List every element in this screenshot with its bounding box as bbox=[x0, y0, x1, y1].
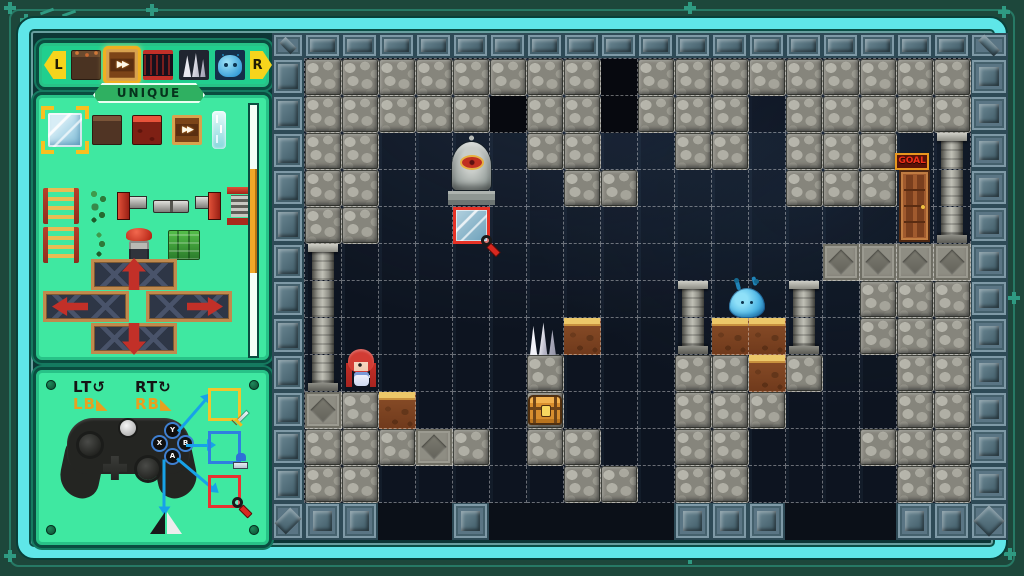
grid-cell-empty[interactable] bbox=[564, 281, 601, 318]
left-stick-icon bbox=[79, 434, 101, 456]
tile-cobblestone[interactable] bbox=[934, 96, 971, 133]
grid-cell-empty[interactable] bbox=[638, 466, 675, 503]
border-block bbox=[933, 502, 970, 540]
palette-item-ladder[interactable] bbox=[43, 227, 79, 263]
grid-cell-empty[interactable] bbox=[675, 207, 712, 244]
tile-cobblestone[interactable] bbox=[342, 207, 379, 244]
grid-cell-empty[interactable] bbox=[490, 318, 527, 355]
grid-cell-empty[interactable] bbox=[860, 392, 897, 429]
frame-ornament bbox=[1012, 296, 1016, 300]
tile-cobblestone[interactable] bbox=[675, 59, 712, 96]
grid-cell-empty[interactable] bbox=[638, 244, 675, 281]
grid-cell-empty[interactable] bbox=[453, 466, 490, 503]
grid-cell-empty[interactable] bbox=[453, 281, 490, 318]
grid-cell-empty[interactable] bbox=[527, 207, 564, 244]
pillar-base bbox=[789, 346, 819, 354]
border-block bbox=[415, 33, 452, 58]
border-block bbox=[272, 132, 304, 169]
tile-dirt[interactable] bbox=[749, 318, 786, 355]
binding-arrow bbox=[163, 460, 166, 508]
platform-up-item[interactable] bbox=[91, 259, 177, 290]
tile-cobblestone[interactable] bbox=[527, 96, 564, 133]
tile-cobblestone[interactable] bbox=[860, 133, 897, 170]
tile-pillar[interactable] bbox=[675, 281, 712, 318]
grid-cell-empty[interactable] bbox=[379, 207, 416, 244]
grid-cell-empty[interactable] bbox=[638, 318, 675, 355]
grid-cell-empty[interactable] bbox=[749, 244, 786, 281]
tile-cobblestone[interactable] bbox=[860, 281, 897, 318]
tab-dirt[interactable] bbox=[71, 50, 101, 80]
border-block bbox=[970, 465, 1008, 502]
rt-label: RT↻ bbox=[135, 378, 172, 396]
player-character[interactable] bbox=[346, 349, 376, 392]
magnifier-cursor-icon bbox=[481, 235, 501, 255]
border-block bbox=[637, 33, 674, 58]
border-corner bbox=[970, 33, 1008, 58]
tile-cobblestone[interactable] bbox=[416, 59, 453, 96]
tile-cobblestone[interactable] bbox=[342, 466, 379, 503]
tile-cobblestone[interactable] bbox=[564, 96, 601, 133]
border-block bbox=[304, 33, 341, 58]
grid-cell-empty[interactable] bbox=[638, 207, 675, 244]
tile-cobblestone[interactable] bbox=[897, 281, 934, 318]
tile-cobblestone[interactable] bbox=[453, 96, 490, 133]
outer-frame: L R UNIQUE LT↺ RT↻ LB◣ RB◣ bbox=[18, 18, 1006, 558]
grid-cell-empty[interactable] bbox=[786, 392, 823, 429]
tile-cobblestone[interactable] bbox=[897, 318, 934, 355]
grid-cell-empty[interactable] bbox=[490, 466, 527, 503]
category-next-button[interactable]: R bbox=[250, 51, 272, 79]
grid-cell-empty[interactable] bbox=[379, 170, 416, 207]
grid-cell-empty[interactable] bbox=[638, 429, 675, 466]
grid-cell-empty[interactable] bbox=[379, 466, 416, 503]
grid-cell-empty[interactable] bbox=[860, 466, 897, 503]
grid-cell-empty[interactable] bbox=[416, 466, 453, 503]
palette-item-pipeM[interactable] bbox=[153, 200, 189, 213]
grid-cell-empty[interactable] bbox=[453, 318, 490, 355]
grid-cell-empty[interactable] bbox=[527, 170, 564, 207]
tile-cobblestone[interactable] bbox=[527, 133, 564, 170]
platform-right-item[interactable] bbox=[146, 291, 232, 322]
tile-carved-stone[interactable] bbox=[823, 244, 860, 281]
border-block bbox=[272, 169, 304, 206]
palette-scrollbar[interactable] bbox=[248, 103, 259, 358]
grid-cell-empty[interactable] bbox=[416, 355, 453, 392]
tile-cobblestone[interactable] bbox=[823, 170, 860, 207]
tile-pillar[interactable] bbox=[934, 133, 971, 170]
sword-binding-box bbox=[208, 388, 241, 421]
tile-cobblestone[interactable] bbox=[601, 170, 638, 207]
tile-cobblestone[interactable] bbox=[675, 96, 712, 133]
controls-legend-panel: LT↺ RT↻ LB◣ RB◣ Y X B A bbox=[33, 367, 272, 548]
sword-tool-icon bbox=[232, 410, 251, 429]
border-block bbox=[933, 33, 970, 58]
grid-cell-empty[interactable] bbox=[823, 466, 860, 503]
rotate-cw-icon: ↻ bbox=[158, 378, 172, 396]
grid-cell-empty[interactable] bbox=[860, 355, 897, 392]
tile-cobblestone[interactable] bbox=[712, 133, 749, 170]
grid-cell-empty[interactable] bbox=[786, 466, 823, 503]
slime-enemy[interactable] bbox=[729, 288, 765, 318]
tile-cobblestone[interactable] bbox=[490, 59, 527, 96]
tile-cobblestone[interactable] bbox=[453, 429, 490, 466]
tile-cobblestone[interactable] bbox=[342, 429, 379, 466]
palette-row-2 bbox=[43, 187, 249, 225]
grid-cell-empty[interactable] bbox=[490, 281, 527, 318]
tile-cobblestone[interactable] bbox=[934, 355, 971, 392]
tile-cobblestone[interactable] bbox=[786, 133, 823, 170]
tile-cobblestone[interactable] bbox=[934, 59, 971, 96]
tile-cobblestone[interactable] bbox=[712, 429, 749, 466]
grid-cell-empty[interactable] bbox=[379, 244, 416, 281]
goal-door[interactable] bbox=[899, 170, 930, 242]
border-block bbox=[272, 280, 304, 317]
grid-cell-empty[interactable] bbox=[379, 355, 416, 392]
tile-void-dark[interactable] bbox=[601, 96, 638, 133]
tile-cobblestone[interactable] bbox=[342, 133, 379, 170]
tile-cobblestone[interactable] bbox=[638, 96, 675, 133]
grid-cell-empty[interactable] bbox=[675, 170, 712, 207]
grid-cell-empty[interactable] bbox=[601, 392, 638, 429]
border-block bbox=[748, 33, 785, 58]
tile-cobblestone[interactable] bbox=[305, 59, 342, 96]
border-block bbox=[563, 33, 600, 58]
grid-cell-empty[interactable] bbox=[564, 244, 601, 281]
tab-trap[interactable] bbox=[143, 50, 173, 80]
grid-cell-empty[interactable] bbox=[564, 355, 601, 392]
grid-cell-empty[interactable] bbox=[786, 244, 823, 281]
tile-cobblestone[interactable] bbox=[305, 466, 342, 503]
tile-cobblestone[interactable] bbox=[712, 355, 749, 392]
grid-cell-empty[interactable] bbox=[342, 244, 379, 281]
treasure-chest[interactable] bbox=[528, 395, 562, 425]
tile-cobblestone[interactable] bbox=[786, 355, 823, 392]
grid-cell-empty[interactable] bbox=[749, 133, 786, 170]
tile-cobblestone[interactable] bbox=[823, 133, 860, 170]
palette-item-pipeL[interactable] bbox=[117, 192, 147, 220]
grid-cell-empty[interactable] bbox=[379, 281, 416, 318]
tile-cobblestone[interactable] bbox=[564, 429, 601, 466]
border-block bbox=[711, 502, 748, 540]
border-block bbox=[970, 206, 1008, 243]
frame-ornament bbox=[8, 6, 12, 10]
grid-cell-empty[interactable] bbox=[823, 207, 860, 244]
grid-cell-empty[interactable] bbox=[490, 170, 527, 207]
x-button-icon: X bbox=[153, 437, 166, 450]
stone-statue[interactable] bbox=[448, 135, 495, 205]
grid-cell-empty[interactable] bbox=[601, 207, 638, 244]
border-block bbox=[272, 243, 304, 280]
grid-cell-empty[interactable] bbox=[490, 355, 527, 392]
grid-cell-empty[interactable] bbox=[416, 244, 453, 281]
grid-cell-empty[interactable] bbox=[786, 207, 823, 244]
tile-cobblestone[interactable] bbox=[527, 429, 564, 466]
tile-carved-stone[interactable] bbox=[934, 244, 971, 281]
tile-pillar[interactable] bbox=[305, 244, 342, 281]
border-block bbox=[674, 33, 711, 58]
grid-cell-empty[interactable] bbox=[601, 281, 638, 318]
grid-cell-empty[interactable] bbox=[712, 207, 749, 244]
grid-cell-empty[interactable] bbox=[527, 281, 564, 318]
tile-cobblestone[interactable] bbox=[564, 170, 601, 207]
grid-cell-empty[interactable] bbox=[416, 207, 453, 244]
grid-cell-empty[interactable] bbox=[453, 392, 490, 429]
grid-cell-empty[interactable] bbox=[416, 281, 453, 318]
pillar-base bbox=[308, 383, 338, 391]
grid-cell-empty[interactable] bbox=[490, 392, 527, 429]
grid-cell-empty[interactable] bbox=[749, 429, 786, 466]
tab-crystal[interactable] bbox=[179, 50, 209, 80]
tile-void-dark[interactable] bbox=[601, 59, 638, 96]
flip-horizontal-icon bbox=[148, 510, 184, 536]
palette-item-fall[interactable] bbox=[212, 111, 226, 149]
tile-cobblestone[interactable] bbox=[934, 392, 971, 429]
border-block bbox=[272, 465, 304, 502]
pillar-capital bbox=[789, 281, 819, 289]
grid-cell-empty[interactable] bbox=[823, 429, 860, 466]
tile-cobblestone[interactable] bbox=[786, 170, 823, 207]
tile-dirt[interactable] bbox=[712, 318, 749, 355]
category-prev-button[interactable]: L bbox=[44, 51, 66, 79]
tile-cobblestone[interactable] bbox=[527, 59, 564, 96]
border-block bbox=[526, 33, 563, 58]
tile-carved-stone[interactable] bbox=[416, 429, 453, 466]
border-block bbox=[378, 33, 415, 58]
grid-cell-empty[interactable] bbox=[638, 392, 675, 429]
palette-item-ladder[interactable] bbox=[43, 188, 79, 224]
frame-ornament bbox=[688, 6, 692, 10]
tile-carved-stone[interactable] bbox=[897, 244, 934, 281]
tile-void-dark[interactable] bbox=[490, 96, 527, 133]
tile-cobblestone[interactable] bbox=[712, 466, 749, 503]
border-block bbox=[970, 169, 1008, 206]
tile-dirt[interactable] bbox=[564, 318, 601, 355]
grid-cell-empty[interactable] bbox=[416, 392, 453, 429]
palette-row-3 bbox=[43, 227, 243, 263]
tile-cobblestone[interactable] bbox=[601, 466, 638, 503]
tile-cobblestone[interactable] bbox=[675, 466, 712, 503]
tile-cobblestone-dark[interactable] bbox=[749, 96, 786, 133]
border-corner bbox=[272, 502, 304, 540]
tile-cobblestone[interactable] bbox=[860, 170, 897, 207]
grid-cell-empty[interactable] bbox=[601, 355, 638, 392]
border-block bbox=[674, 502, 711, 540]
tile-cobblestone[interactable] bbox=[527, 355, 564, 392]
tile-cobblestone[interactable] bbox=[897, 59, 934, 96]
palette-item-plunger[interactable] bbox=[123, 227, 155, 263]
tile-cobblestone[interactable] bbox=[379, 429, 416, 466]
border-block bbox=[970, 132, 1008, 169]
pillar-capital bbox=[937, 133, 967, 141]
palette-item-moss[interactable] bbox=[168, 230, 200, 260]
grid-cell-empty[interactable] bbox=[490, 429, 527, 466]
tile-cobblestone[interactable] bbox=[342, 59, 379, 96]
tile-cobblestone[interactable] bbox=[305, 429, 342, 466]
tile-cobblestone[interactable] bbox=[860, 59, 897, 96]
grid-cell-empty[interactable] bbox=[601, 133, 638, 170]
border-block bbox=[452, 502, 489, 540]
tile-cobblestone[interactable] bbox=[712, 96, 749, 133]
grid-cell-empty[interactable] bbox=[823, 392, 860, 429]
tile-cobblestone[interactable] bbox=[749, 392, 786, 429]
grid-cell-empty[interactable] bbox=[749, 207, 786, 244]
tile-carved-stone[interactable] bbox=[860, 244, 897, 281]
grid-cell-empty[interactable] bbox=[638, 170, 675, 207]
platform-down-item[interactable] bbox=[91, 323, 177, 354]
border-block bbox=[711, 33, 748, 58]
palette-scrollbar-thumb[interactable] bbox=[250, 169, 257, 273]
tile-cobblestone[interactable] bbox=[638, 59, 675, 96]
grid-cell-empty[interactable] bbox=[527, 466, 564, 503]
tile-cobblestone[interactable] bbox=[786, 96, 823, 133]
tile-cobblestone[interactable] bbox=[860, 318, 897, 355]
border-block bbox=[341, 502, 378, 540]
tile-pillar[interactable] bbox=[934, 170, 971, 207]
tile-cobblestone[interactable] bbox=[934, 429, 971, 466]
tile-cobblestone[interactable] bbox=[342, 96, 379, 133]
tile-cobblestone[interactable] bbox=[379, 96, 416, 133]
palette-item-pipeJ[interactable] bbox=[195, 192, 221, 220]
palette-item-vinesm[interactable] bbox=[92, 230, 110, 260]
tile-cobblestone[interactable] bbox=[305, 133, 342, 170]
palette-item-ice[interactable] bbox=[48, 113, 82, 147]
palette-item-brown[interactable] bbox=[92, 115, 122, 145]
border-block bbox=[489, 33, 526, 58]
tile-grid[interactable]: GOAL bbox=[304, 58, 971, 503]
tile-cobblestone[interactable] bbox=[897, 466, 934, 503]
border-block bbox=[970, 95, 1008, 132]
tile-cobblestone[interactable] bbox=[675, 355, 712, 392]
magnifier-tool-icon bbox=[232, 497, 251, 516]
tile-cobblestone[interactable] bbox=[342, 392, 379, 429]
platform-left-item[interactable] bbox=[43, 291, 129, 322]
grid-cell-empty[interactable] bbox=[490, 133, 527, 170]
tile-cobblestone[interactable] bbox=[305, 96, 342, 133]
tile-cobblestone[interactable] bbox=[305, 207, 342, 244]
tile-cobblestone[interactable] bbox=[749, 59, 786, 96]
grid-cell-empty[interactable] bbox=[786, 429, 823, 466]
tile-pillar[interactable] bbox=[675, 318, 712, 355]
tile-cobblestone[interactable] bbox=[564, 59, 601, 96]
border-block bbox=[272, 95, 304, 132]
tile-cobblestone[interactable] bbox=[897, 96, 934, 133]
grid-cell-empty[interactable] bbox=[601, 318, 638, 355]
grid-cell-empty[interactable] bbox=[749, 466, 786, 503]
tile-cobblestone[interactable] bbox=[823, 96, 860, 133]
grid-cell-empty[interactable] bbox=[712, 170, 749, 207]
tile-cobblestone[interactable] bbox=[379, 59, 416, 96]
palette-item-lava[interactable] bbox=[132, 115, 162, 145]
tile-cobblestone[interactable] bbox=[675, 392, 712, 429]
category-tabs bbox=[71, 50, 245, 80]
tile-cobblestone[interactable] bbox=[416, 96, 453, 133]
grid-cell-empty[interactable] bbox=[379, 133, 416, 170]
palette-item-conveyor[interactable] bbox=[172, 115, 202, 145]
tile-pillar[interactable] bbox=[305, 281, 342, 318]
goal-sign[interactable]: GOAL bbox=[895, 153, 929, 170]
xbox-guide-icon bbox=[120, 420, 136, 436]
grid-cell-empty[interactable] bbox=[527, 244, 564, 281]
grid-cell-empty[interactable] bbox=[601, 429, 638, 466]
pillar-base bbox=[937, 235, 967, 243]
border-block bbox=[304, 502, 341, 540]
tile-cobblestone[interactable] bbox=[823, 59, 860, 96]
pillar-base bbox=[678, 346, 708, 354]
tile-cobblestone[interactable] bbox=[934, 281, 971, 318]
tile-cobblestone[interactable] bbox=[564, 466, 601, 503]
tile-cobblestone[interactable] bbox=[786, 59, 823, 96]
tile-pillar[interactable] bbox=[786, 281, 823, 318]
tile-cobblestone[interactable] bbox=[342, 170, 379, 207]
grid-cell-empty[interactable] bbox=[712, 244, 749, 281]
grid-cell-empty[interactable] bbox=[342, 281, 379, 318]
border-block bbox=[822, 33, 859, 58]
tile-cobblestone[interactable] bbox=[712, 59, 749, 96]
tile-cobblestone[interactable] bbox=[564, 133, 601, 170]
palette-item-vine[interactable] bbox=[85, 188, 111, 224]
tile-cobblestone[interactable] bbox=[453, 59, 490, 96]
tab-conveyor[interactable] bbox=[106, 49, 138, 81]
tile-pillar[interactable] bbox=[305, 318, 342, 355]
tile-cobblestone[interactable] bbox=[305, 170, 342, 207]
grid-cell-empty[interactable] bbox=[638, 133, 675, 170]
lt-label: LT↺ bbox=[73, 378, 106, 396]
tile-cobblestone[interactable] bbox=[860, 96, 897, 133]
tile-cobblestone[interactable] bbox=[712, 392, 749, 429]
tile-cobblestone[interactable] bbox=[897, 355, 934, 392]
border-block bbox=[896, 502, 933, 540]
tile-cobblestone[interactable] bbox=[860, 429, 897, 466]
tile-cobblestone[interactable] bbox=[675, 133, 712, 170]
triangle-icon: ◣ bbox=[160, 395, 173, 413]
tile-pillar[interactable] bbox=[305, 355, 342, 392]
grid-cell-empty[interactable] bbox=[379, 318, 416, 355]
tab-slime[interactable] bbox=[215, 50, 245, 80]
grid-cell-empty[interactable] bbox=[675, 244, 712, 281]
grid-cell-empty[interactable] bbox=[564, 392, 601, 429]
grid-cell-empty[interactable] bbox=[638, 355, 675, 392]
grid-cell-empty[interactable] bbox=[823, 281, 860, 318]
tile-cobblestone[interactable] bbox=[934, 466, 971, 503]
palette-row-1 bbox=[48, 111, 248, 149]
border-block bbox=[970, 243, 1008, 280]
tile-cobblestone[interactable] bbox=[934, 318, 971, 355]
grid-cell-empty[interactable] bbox=[638, 281, 675, 318]
grid-cell-empty[interactable] bbox=[749, 170, 786, 207]
tile-pillar[interactable] bbox=[934, 207, 971, 244]
tile-cobblestone[interactable] bbox=[675, 429, 712, 466]
border-block bbox=[970, 280, 1008, 317]
level-editor-area: GOAL bbox=[272, 33, 1008, 540]
grid-cell-empty[interactable] bbox=[564, 207, 601, 244]
grid-cell-empty[interactable] bbox=[823, 318, 860, 355]
grid-cell-empty[interactable] bbox=[601, 244, 638, 281]
grid-cell-empty[interactable] bbox=[416, 318, 453, 355]
rb-label: RB◣ bbox=[135, 395, 173, 413]
frame-ornament bbox=[1002, 10, 1006, 14]
tile-carved-stone[interactable] bbox=[305, 392, 342, 429]
border-block bbox=[970, 354, 1008, 391]
tile-dirt[interactable] bbox=[379, 392, 416, 429]
grid-cell-empty[interactable] bbox=[453, 355, 490, 392]
tile-pillar[interactable] bbox=[786, 318, 823, 355]
border-corner bbox=[970, 502, 1008, 540]
tile-cobblestone[interactable] bbox=[897, 392, 934, 429]
grid-cell-empty[interactable] bbox=[823, 355, 860, 392]
tile-dirt[interactable] bbox=[749, 355, 786, 392]
tile-cobblestone[interactable] bbox=[897, 429, 934, 466]
grid-cell-empty[interactable] bbox=[860, 207, 897, 244]
